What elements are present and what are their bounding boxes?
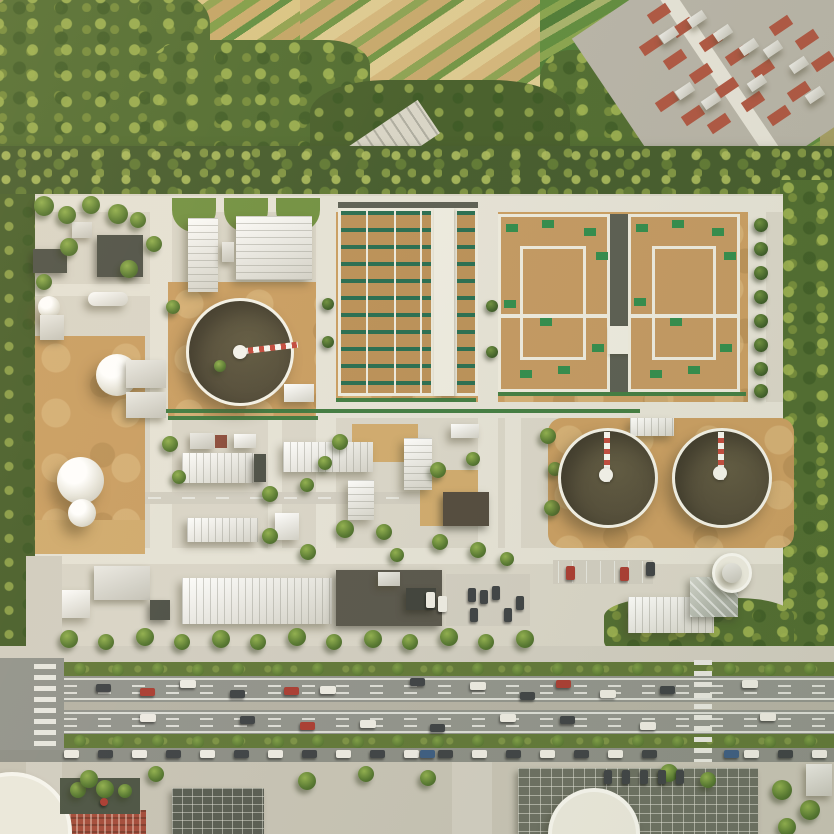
street-tree (212, 630, 230, 648)
campus-tree (430, 462, 446, 478)
service-van (438, 596, 447, 612)
plaza-tree (298, 772, 316, 790)
campus-tree (262, 528, 278, 544)
complex-annex (378, 572, 400, 586)
median-shrub (804, 663, 816, 675)
campus-tree (466, 452, 480, 466)
street-tree (440, 628, 458, 646)
median-shrub (192, 736, 204, 748)
admin-building (188, 218, 218, 292)
median-shrub (74, 735, 86, 747)
city-road-south (452, 762, 492, 834)
basin-cross-wall (630, 314, 738, 318)
basin-algae-patch (506, 224, 518, 232)
median-shrub (632, 663, 644, 675)
basin-algae-patch (596, 252, 608, 260)
median-shrub (804, 735, 816, 747)
campus-tree (108, 204, 128, 224)
median-shrub (552, 663, 564, 675)
parked-car (504, 608, 512, 622)
parking-stripe (614, 561, 615, 583)
road-center-dashes (148, 497, 434, 499)
basin-algae-patch (724, 252, 736, 260)
campus-tree (322, 298, 334, 310)
low-warehouse (187, 518, 258, 542)
curbside-car (404, 750, 419, 758)
median-shrub (74, 663, 86, 675)
plaza-tree (358, 766, 374, 782)
hedge-row (336, 398, 476, 402)
clarifier-hub (233, 345, 247, 359)
red-shed (215, 435, 227, 448)
clarifier-algae (214, 360, 226, 372)
campus-tree (120, 260, 138, 278)
parked-car (468, 588, 476, 602)
campus-tree (432, 534, 448, 550)
median-shrub (764, 736, 776, 748)
parking-stripe (642, 561, 643, 583)
parked-car (470, 608, 478, 622)
median-shrub (764, 664, 776, 676)
storage-dome (68, 499, 96, 527)
process-tower (404, 438, 432, 490)
campus-tree (60, 238, 78, 256)
basin-algae-patch (558, 366, 570, 374)
campus-tree (318, 456, 332, 470)
median-shrub (312, 735, 324, 747)
lane-dashes (64, 725, 834, 727)
courtyard-tree (118, 784, 132, 798)
campus-tree (376, 524, 392, 540)
traffic-car (430, 724, 445, 732)
aeration-basin-wall (420, 210, 422, 394)
curbside-car (642, 750, 657, 758)
curbside-car (234, 750, 249, 758)
median-shrub (724, 735, 736, 747)
parking-stripe (600, 561, 601, 583)
hedge-tree (754, 218, 768, 232)
basin-algae-patch (542, 220, 554, 228)
street-tree (250, 634, 266, 650)
horizontal-tank (88, 292, 128, 306)
traffic-car (742, 680, 758, 688)
median-shrub (392, 663, 404, 675)
storage-dome (57, 457, 104, 504)
median-shrub (192, 664, 204, 676)
basin-algae-patch (650, 370, 662, 378)
basin-algae-patch (540, 318, 552, 326)
curbside-car (744, 750, 759, 758)
service-van (426, 592, 435, 608)
traffic-car (556, 680, 571, 688)
campus-tree (82, 196, 100, 214)
basin-algae-patch (584, 228, 596, 236)
plant-road (35, 548, 783, 564)
aeration-basin-cell (454, 208, 478, 396)
campus-tree (390, 548, 404, 562)
traffic-car (520, 692, 535, 700)
pump-house (284, 384, 314, 402)
hedge-row (498, 392, 746, 396)
median-shrub (272, 664, 284, 676)
street-tree (174, 634, 190, 650)
basin-algae-patch (712, 228, 724, 236)
campus-tree (300, 478, 314, 492)
median-shrub (672, 664, 684, 676)
basin-algae-patch (636, 224, 648, 232)
clarifier-hub (713, 466, 727, 480)
parking-stripe (558, 561, 559, 583)
basin-algae-patch (670, 318, 682, 326)
median-shrub (552, 735, 564, 747)
median-shrub (512, 664, 524, 676)
curbside-car (506, 750, 521, 758)
traffic-car (96, 684, 111, 692)
campus-tree (322, 336, 334, 348)
median-shrub (592, 736, 604, 748)
campus-tree (470, 542, 486, 558)
median-shrub (432, 664, 444, 676)
basin-algae-patch (720, 344, 732, 352)
crosswalk-west (34, 664, 56, 748)
garden-feature (100, 798, 108, 806)
street-tree (478, 634, 494, 650)
parked-car (620, 567, 629, 581)
lane-dashes (64, 692, 834, 694)
plaza-tree (700, 772, 716, 788)
street-tree (60, 630, 78, 648)
median-shrub (672, 736, 684, 748)
plaza-tree (420, 770, 436, 786)
gray-building (126, 392, 166, 418)
campus-tree (162, 436, 178, 452)
aeration-basin-walkway (434, 208, 454, 396)
aeration-basin-wall (394, 210, 396, 394)
campus-tree (34, 196, 54, 216)
shed-row (190, 433, 214, 449)
median-shrub (632, 735, 644, 747)
utility-building (40, 315, 64, 340)
median-shrub (392, 735, 404, 747)
basin-algae-patch (688, 366, 700, 374)
campus-tree (36, 274, 52, 290)
courtyard-tree (96, 780, 114, 798)
solar-roof-building (172, 788, 264, 834)
median-shrub (312, 663, 324, 675)
boundary-tree-belt (0, 146, 834, 196)
small-white-building (451, 424, 479, 438)
curbside-car (438, 750, 453, 758)
hedge-tree (754, 362, 768, 376)
basin-bridge (608, 326, 630, 354)
campus-tree (146, 236, 162, 252)
curbside-car (132, 750, 147, 758)
gray-building (126, 360, 166, 388)
traffic-car (600, 690, 616, 698)
plaza-tree (772, 780, 792, 800)
aerial-photo: Aerial drone photograph of a wastewater … (0, 0, 834, 834)
curbside-car (472, 750, 487, 758)
curbside-car (302, 750, 317, 758)
small-annex (222, 242, 234, 262)
hedge-tree (754, 314, 768, 328)
white-building (60, 590, 90, 618)
hedge-tree (754, 290, 768, 304)
traffic-car (140, 688, 155, 696)
lane-dashes (64, 718, 834, 720)
small-gray-building (806, 764, 832, 796)
street-tree (364, 630, 382, 648)
campus-tree (262, 486, 278, 502)
lot-car (676, 770, 684, 784)
traffic-car (560, 716, 575, 724)
curbside-car (268, 750, 283, 758)
access-road-west (26, 556, 62, 648)
median-shrub (592, 664, 604, 676)
median-shrub (472, 663, 484, 675)
traffic-car (284, 687, 299, 695)
crosswalk-east (694, 660, 712, 762)
white-shed (234, 434, 256, 448)
traffic-car (640, 722, 656, 730)
curbside-car (540, 750, 555, 758)
warehouse-west (182, 453, 254, 483)
street-tree (326, 634, 342, 650)
plaza-tree (778, 818, 796, 834)
median-shrub (432, 736, 444, 748)
traffic-car (300, 722, 315, 730)
curbside-car (608, 750, 623, 758)
lab-building (348, 480, 374, 520)
median-shrub (112, 664, 124, 676)
street-tree (516, 630, 534, 648)
curbside-car (778, 750, 793, 758)
lane-line (64, 731, 834, 733)
basin-algae-patch (504, 300, 516, 308)
round-tower-core (722, 563, 742, 583)
campus-tree (166, 300, 180, 314)
median-shrub (352, 736, 364, 748)
parked-car (516, 596, 524, 610)
curbside-car (812, 750, 827, 758)
traffic-car (470, 682, 486, 690)
lane-line (64, 712, 834, 714)
curbside-car (724, 750, 739, 758)
basin-inner-wall (652, 246, 716, 360)
aeration-basin-edge (338, 202, 478, 208)
campus-tree (172, 470, 186, 484)
campus-tree (486, 346, 498, 358)
plaza-tree (80, 770, 98, 788)
lot-car (622, 770, 630, 784)
median-shrub (724, 663, 736, 675)
hedge-row (140, 409, 640, 413)
plant-road (316, 196, 336, 564)
median-shrub (232, 663, 244, 675)
traffic-car (500, 714, 516, 722)
long-warehouse-south (182, 578, 332, 624)
clarifier-hub (599, 468, 613, 482)
median-shrub (152, 735, 164, 747)
street-tree (402, 634, 418, 650)
parked-car (492, 586, 500, 600)
campus-tree (130, 212, 146, 228)
curbside-car (420, 750, 435, 758)
curbside-car (98, 750, 113, 758)
median-shrub (472, 735, 484, 747)
curbside-car (64, 750, 79, 758)
traffic-car (240, 716, 255, 724)
median-shrub (272, 736, 284, 748)
basin-algae-patch (592, 344, 604, 352)
campus-tree (336, 520, 354, 538)
street-tree (136, 628, 154, 646)
parking-stripe (586, 561, 587, 583)
hedge-tree (754, 242, 768, 256)
warehouse-dark-end (254, 454, 266, 482)
traffic-car (230, 690, 245, 698)
median-shrub (512, 736, 524, 748)
curbside-car (166, 750, 181, 758)
hedge-tree (754, 266, 768, 280)
campus-tree (500, 552, 514, 566)
campus-tree (486, 300, 498, 312)
traffic-car (140, 714, 156, 722)
campus-tree (58, 206, 76, 224)
traffic-car (320, 686, 336, 694)
parked-car (566, 566, 575, 580)
small-plant-building (275, 513, 299, 540)
small-gray-building (72, 222, 92, 238)
dark-shed (150, 600, 170, 620)
parked-car (646, 562, 655, 576)
traffic-car (360, 720, 376, 728)
curbside-car (574, 750, 589, 758)
hedge-tree (754, 384, 768, 398)
basin-algae-patch (634, 298, 646, 306)
gray-building (94, 566, 150, 600)
street-tree (288, 628, 306, 646)
curbside-car (336, 750, 351, 758)
lot-car (604, 770, 612, 784)
basin-algae-patch (672, 220, 684, 228)
curbside-car (200, 750, 215, 758)
lane-line (64, 698, 834, 700)
clarifier-utility-building (630, 418, 674, 436)
campus-tree (544, 500, 560, 516)
traffic-car (410, 678, 425, 686)
lot-car (658, 770, 666, 784)
street-tree (98, 634, 114, 650)
hedge-tree (754, 338, 768, 352)
basin-cross-wall (501, 314, 607, 318)
basin-divider-walk (610, 214, 628, 392)
basin-algae-patch (520, 370, 532, 378)
traffic-car (660, 686, 675, 694)
campus-tree (332, 434, 348, 450)
workshop-building (236, 216, 312, 280)
plant-road (505, 418, 521, 564)
hedge-row (168, 416, 318, 420)
dirt-patch (35, 520, 145, 554)
traffic-car (760, 713, 776, 721)
boiler-building (443, 492, 489, 526)
campus-tree (540, 428, 556, 444)
plaza-tree (148, 766, 164, 782)
plaza-tree (800, 800, 820, 820)
median-shrub (112, 736, 124, 748)
basin-inner-wall (520, 246, 586, 360)
curbside-car (370, 750, 385, 758)
aeration-basin-wall (366, 210, 368, 394)
lot-car (640, 770, 648, 784)
median-shrub (352, 664, 364, 676)
traffic-car (180, 680, 196, 688)
campus-tree (300, 544, 316, 560)
median-shrub (232, 735, 244, 747)
parked-car (480, 590, 488, 604)
median-shrub (152, 663, 164, 675)
